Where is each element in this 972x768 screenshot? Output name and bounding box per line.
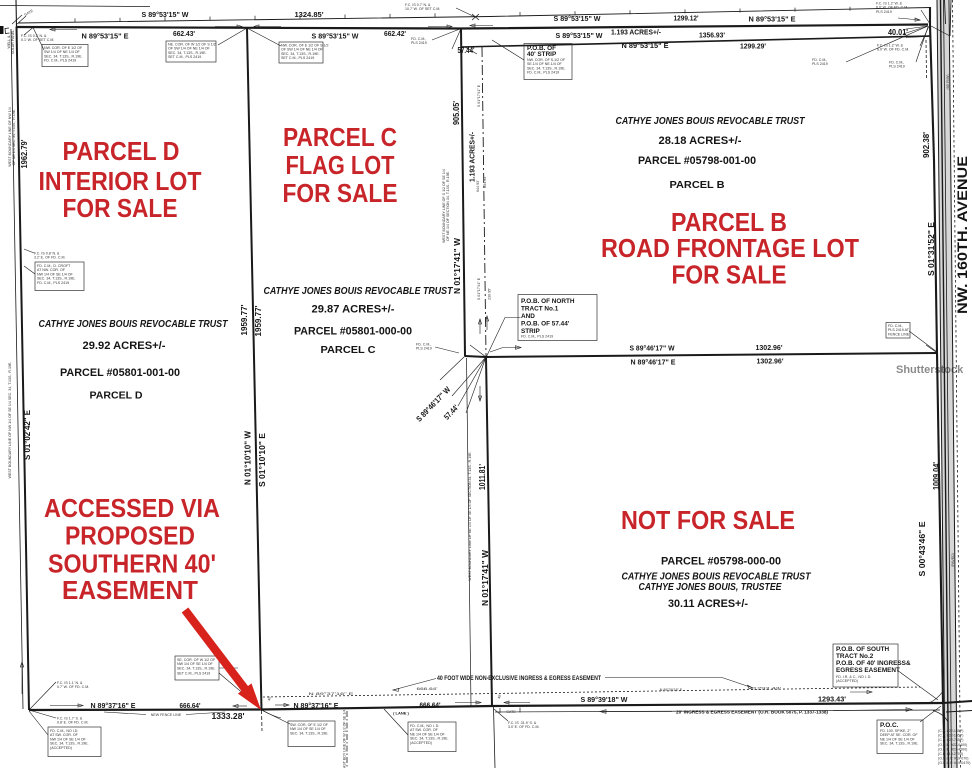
svg-text:N 89°53'15" E: N 89°53'15" E [82, 32, 129, 41]
svg-text:PARCEL D: PARCEL D [63, 136, 180, 166]
svg-text:1302.96': 1302.96' [757, 357, 784, 366]
svg-text:ACCESSED VIA: ACCESSED VIA [44, 493, 220, 523]
svg-text:20' INGRESS & EGRESS EASEMENT: 20' INGRESS & EGRESS EASEMENT (O.R. BOOK… [676, 710, 828, 715]
svg-text:PARCEL D: PARCEL D [90, 390, 143, 402]
svg-text:PARCEL #05798-000-00: PARCEL #05798-000-00 [661, 556, 781, 568]
svg-text:GATE: GATE [506, 710, 516, 714]
svg-text:(PAVED): (PAVED) [951, 553, 955, 567]
svg-text:1962.79': 1962.79' [20, 139, 29, 168]
svg-text:SOUTHERN 40': SOUTHERN 40' [48, 549, 216, 579]
svg-text:1299.12': 1299.12' [674, 14, 699, 23]
svg-text:NOT FOR SALE: NOT FOR SALE [621, 505, 795, 535]
svg-text:S 01°31'52" E: S 01°31'52" E [927, 221, 936, 276]
svg-text:854.93': 854.93' [483, 176, 487, 188]
svg-text:S 89°53'15" W: S 89°53'15" W [554, 14, 602, 23]
svg-text:902.38': 902.38' [922, 132, 931, 158]
svg-text:INTERIOR LOT: INTERIOR LOT [39, 166, 202, 196]
svg-text:EGRESS EASEMENT: EGRESS EASEMENT [836, 667, 900, 674]
svg-text:FD. C.M.,PLS 2419: FD. C.M.,PLS 2419 [416, 343, 432, 351]
svg-text:NW. 160TH. AVENUE: NW. 160TH. AVENUE [955, 156, 970, 314]
svg-text:1299.29': 1299.29' [740, 42, 766, 51]
svg-text:FD. C.M., PLS 2419: FD. C.M., PLS 2419 [521, 335, 553, 339]
svg-text:1333.28': 1333.28' [212, 712, 245, 721]
svg-text:PARCEL #05801-001-00: PARCEL #05801-001-00 [60, 367, 180, 379]
svg-text:NEW FENCE LINE: NEW FENCE LINE [151, 713, 182, 717]
svg-text:N 01°17'41" W: N 01°17'41" W [453, 238, 462, 294]
svg-text:S 01°17'41" E: S 01°17'41" E [477, 84, 481, 107]
svg-text:CATHYE JONES BOUIS REVOCABLE T: CATHYE JONES BOUIS REVOCABLE TRUST [616, 116, 806, 127]
svg-text:N 89°46'17" E: N 89°46'17" E [631, 358, 676, 367]
svg-text:S 89°39'18" W: S 89°39'18" W [581, 695, 629, 704]
svg-text:PARCEL #05798-001-00: PARCEL #05798-001-00 [638, 155, 756, 167]
svg-text:N 89°37'16" E: N 89°37'16" E [294, 701, 339, 710]
svg-text:TRACT No.2: TRACT No.2 [836, 653, 874, 660]
svg-text:P.O.B. OF NORTH: P.O.B. OF NORTH [521, 298, 575, 305]
svg-text:TRACT No.1: TRACT No.1 [521, 306, 559, 313]
svg-text:1293.43': 1293.43' [818, 695, 846, 704]
svg-text:1324.85': 1324.85' [295, 10, 324, 19]
svg-text:P.O.B. OF SOUTH: P.O.B. OF SOUTH [836, 646, 890, 653]
svg-text:(66' R/W): (66' R/W) [946, 74, 950, 89]
svg-text:FOR SALE: FOR SALE [283, 178, 398, 208]
svg-text:S 01°10'10" E: S 01°10'10" E [258, 432, 267, 487]
svg-text:1959.77': 1959.77' [240, 304, 249, 335]
svg-text:N 01°10'10" W: N 01°10'10" W [244, 431, 253, 485]
svg-text:CATHYE JONES BOUIS REVOCABLE T: CATHYE JONES BOUIS REVOCABLE TRUST [39, 319, 229, 330]
svg-text:EAST BDY LINE OF W 1/2 OF SE 1: EAST BDY LINE OF W 1/2 OF SE 1/4 [343, 710, 347, 768]
svg-text:WEST BOUNDARY LINE OF NW 1/4OF: WEST BOUNDARY LINE OF NW 1/4OF NE 1/4 SE… [8, 107, 16, 167]
svg-text:F.C. IS .31.9' S. &3.0' E. OF: F.C. IS .31.9' S. &3.0' E. OF FD. C.M. [508, 721, 539, 729]
svg-text:1009.04': 1009.04' [932, 462, 941, 490]
svg-text:29.87 ACRES+/-: 29.87 ACRES+/- [312, 304, 395, 316]
svg-text:S 01°02'42" E: S 01°02'42" E [23, 409, 32, 460]
svg-text:1356.93': 1356.93' [699, 31, 725, 40]
svg-text:( LANE ): ( LANE ) [393, 711, 409, 716]
svg-text:644.93': 644.93' [476, 180, 480, 192]
svg-text:PARCEL C: PARCEL C [321, 344, 376, 356]
svg-text:666.64': 666.64' [417, 687, 439, 691]
svg-text:CATHYE JONES BOUIS REVOCABLE T: CATHYE JONES BOUIS REVOCABLE TRUST [622, 572, 812, 583]
svg-text:N 01°17'41" W: N 01°17'41" W [481, 550, 490, 606]
svg-text:28.18 ACRES+/-: 28.18 ACRES+/- [659, 135, 742, 147]
svg-text:662.43': 662.43' [173, 29, 195, 38]
svg-text:S 89°53'15" W: S 89°53'15" W [556, 31, 604, 40]
svg-text:WEST BOUNDARY LINE OF S 1/2 OF: WEST BOUNDARY LINE OF S 1/2 OF SE 1/4OF … [442, 169, 450, 243]
svg-text:S 01°17'41" E: S 01°17'41" E [477, 277, 481, 300]
svg-text:40' STRIP: 40' STRIP [527, 51, 557, 58]
svg-text:P.O.B. OF 40' INGRESS&: P.O.B. OF 40' INGRESS& [836, 660, 911, 667]
svg-text:N 89°37'16" E: N 89°37'16" E [91, 701, 136, 710]
svg-text:WEST BOUNDARY LINE OF NE 1/4 O: WEST BOUNDARY LINE OF NE 1/4 OF SE 1/4 O… [468, 451, 472, 580]
svg-text:PROPOSED: PROPOSED [65, 521, 195, 551]
svg-text:1011.81': 1011.81' [478, 464, 487, 490]
svg-text:FD. C.M.,PLS 2419: FD. C.M.,PLS 2419 [411, 37, 427, 45]
svg-text:30.11 ACRES+/-: 30.11 ACRES+/- [668, 598, 748, 610]
svg-text:S 89°46'17" W: S 89°46'17" W [630, 344, 676, 353]
svg-text:40 FOOT WIDE NON-EXCLUSIVE ING: 40 FOOT WIDE NON-EXCLUSIVE INGRESS & EGR… [437, 675, 601, 682]
svg-text:P.O.B. OF 57.44': P.O.B. OF 57.44' [521, 321, 570, 328]
svg-text:AND: AND [521, 313, 535, 320]
svg-text:N 89°53'15" E: N 89°53'15" E [622, 41, 669, 50]
svg-text:FOR SALE: FOR SALE [672, 260, 787, 290]
svg-text:1293.43': 1293.43' [753, 687, 782, 691]
svg-text:SE. COR. OF W 1/2 OFNW 1/4 OF: SE. COR. OF W 1/2 OFNW 1/4 OF SE 1/4 OFS… [177, 658, 216, 675]
svg-text:S 00°43'46" E: S 00°43'46" E [918, 521, 927, 577]
svg-text:N 89°53'15" E: N 89°53'15" E [749, 15, 796, 24]
svg-text:230.95': 230.95' [488, 288, 492, 300]
svg-text:905.05': 905.05' [452, 101, 461, 125]
svg-text:EASEMENT: EASEMENT [62, 575, 198, 605]
svg-text:FOR SALE: FOR SALE [63, 193, 178, 223]
svg-text:666.64': 666.64' [420, 701, 441, 710]
svg-text:FLAG LOT: FLAG LOT [286, 150, 395, 180]
svg-text:1.193 ACRES+/-: 1.193 ACRES+/- [611, 28, 661, 37]
svg-text:FD. C.M.,PLS 2419: FD. C.M.,PLS 2419 [889, 61, 905, 69]
svg-text:FD. C.M.,PLS 2419: FD. C.M.,PLS 2419 [812, 58, 828, 66]
svg-text:WEST BOUNDARY LINE OF NW 1/4 O: WEST BOUNDARY LINE OF NW 1/4 OF SE 1/4 S… [8, 362, 12, 479]
svg-text:PARCEL #05801-000-00: PARCEL #05801-000-00 [294, 326, 412, 338]
svg-text:666.64': 666.64' [180, 701, 201, 710]
svg-text:N 89°37'16" E: N 89°37'16" E [309, 692, 355, 696]
svg-text:CATHYE JONES BOUIS REVOCABLE T: CATHYE JONES BOUIS REVOCABLE TRUST [264, 286, 454, 297]
svg-text:P.O.C.: P.O.C. [880, 722, 899, 729]
svg-text:29.92 ACRES+/-: 29.92 ACRES+/- [83, 340, 166, 352]
svg-text:CATHYE JONES BOUIS, TRUSTEE: CATHYE JONES BOUIS, TRUSTEE [639, 582, 782, 593]
svg-text:1959.77': 1959.77' [254, 305, 263, 336]
svg-text:PARCEL B: PARCEL B [670, 179, 725, 191]
svg-text:S 89°53'15" W: S 89°53'15" W [312, 32, 360, 41]
svg-text:1.193 ACRES+/-: 1.193 ACRES+/- [468, 132, 477, 182]
svg-text:S 89°53'15" W: S 89°53'15" W [142, 10, 190, 19]
svg-text:1302.96': 1302.96' [756, 343, 783, 352]
svg-text:Shutterstock: Shutterstock [896, 364, 964, 376]
svg-text:SW. COR. OF E 1/2 OFNW 1/4 OF: SW. COR. OF E 1/2 OFNW 1/4 OF SE 1/4 OFS… [290, 723, 329, 735]
svg-text:662.42': 662.42' [384, 29, 406, 38]
svg-text:N 89°39'18" E: N 89°39'18" E [660, 688, 683, 692]
svg-text:ROAD FRONTAGE LOT: ROAD FRONTAGE LOT [601, 233, 859, 263]
svg-text:PARCEL C: PARCEL C [283, 122, 397, 152]
